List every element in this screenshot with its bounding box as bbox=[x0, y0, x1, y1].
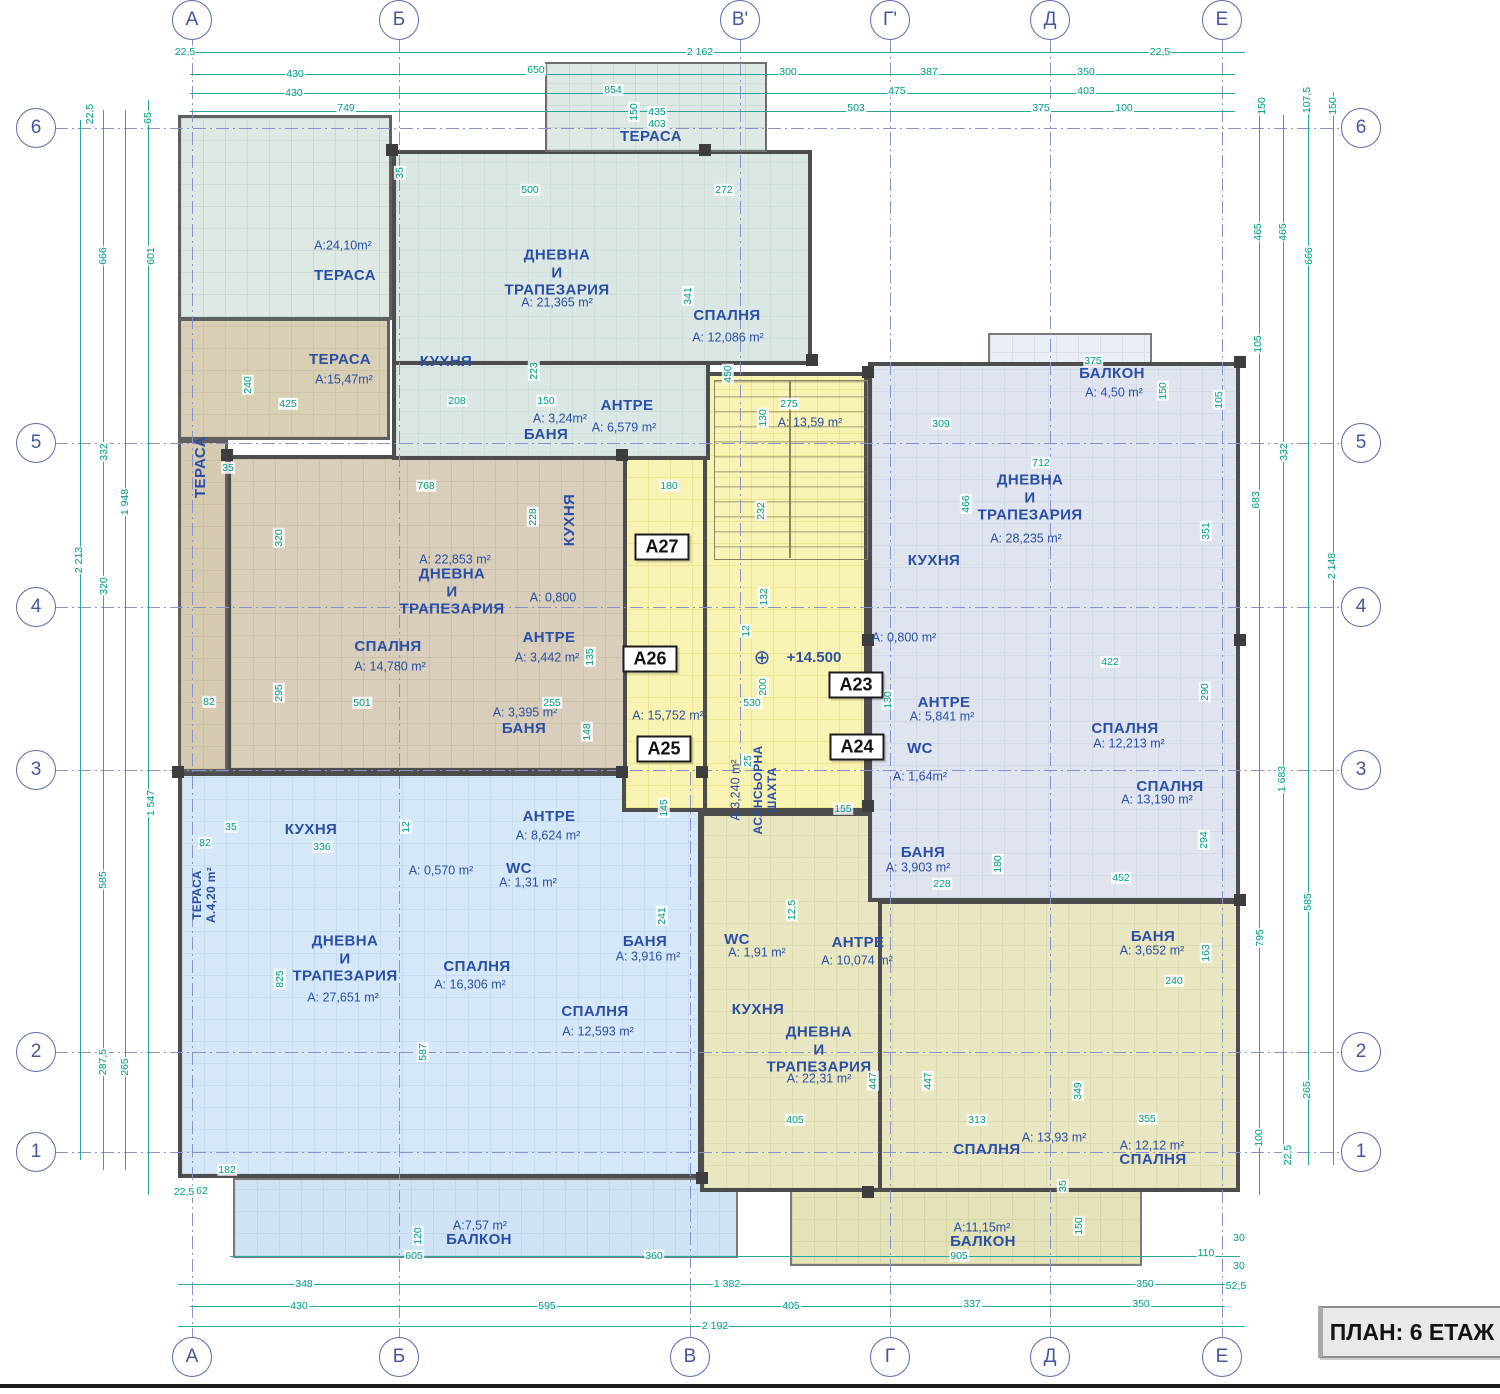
structural-column bbox=[221, 449, 233, 461]
dimension-label: 300 bbox=[778, 66, 798, 78]
staircase-divider bbox=[789, 380, 791, 558]
dimension-label: 387 bbox=[919, 66, 939, 78]
grid-bubble: 1 bbox=[1341, 1132, 1381, 1172]
dimension-label: 150 bbox=[1256, 96, 1268, 116]
grid-bubble: 6 bbox=[1341, 108, 1381, 148]
dimension-label: 30 bbox=[1232, 1260, 1246, 1272]
dimension-line bbox=[1308, 92, 1309, 1165]
dimension-line bbox=[103, 110, 104, 1170]
dimension-label: 465 bbox=[1252, 222, 1264, 242]
dimension-label: 22,5 bbox=[84, 103, 96, 125]
terrace-top-left bbox=[178, 115, 392, 320]
dimension-line bbox=[1283, 115, 1284, 1165]
grid-bubble: Г' bbox=[870, 0, 910, 40]
grid-bubble: 1 bbox=[16, 1132, 56, 1172]
grid-bubble: А bbox=[172, 0, 212, 40]
apartment-a27-main bbox=[392, 150, 812, 365]
grid-bubble: 2 bbox=[16, 1032, 56, 1072]
dimension-line bbox=[190, 93, 1235, 94]
grid-bubble: 6 bbox=[16, 108, 56, 148]
grid-bubble: Е bbox=[1202, 0, 1242, 40]
dimension-line bbox=[148, 100, 149, 1195]
grid-bubble: В' bbox=[720, 0, 760, 40]
dimension-label: 375 bbox=[1031, 102, 1051, 114]
apartment-tag-a27: A27 bbox=[634, 534, 689, 561]
dimension-line bbox=[190, 74, 1235, 75]
dimension-label: 795 bbox=[1254, 928, 1266, 948]
grid-axis-line bbox=[192, 40, 193, 1340]
dimension-label: 332 bbox=[1278, 442, 1290, 462]
dimension-label: 749 bbox=[336, 102, 356, 114]
structural-column bbox=[616, 449, 628, 461]
grid-axis-line bbox=[1222, 40, 1223, 1340]
grid-bubble: Д bbox=[1030, 1337, 1070, 1377]
grid-axis-line bbox=[55, 128, 1345, 129]
dimension-label: 2 148 bbox=[1326, 552, 1338, 580]
dimension-label: 100 bbox=[1114, 102, 1134, 114]
dimension-label: 350 bbox=[1131, 1298, 1151, 1310]
structural-column bbox=[1234, 894, 1246, 906]
dimension-label: 30 bbox=[1232, 1232, 1246, 1244]
dimension-line bbox=[1333, 92, 1334, 1165]
structural-column bbox=[862, 634, 874, 646]
grid-axis-line bbox=[690, 772, 691, 1340]
structural-column bbox=[806, 354, 818, 366]
grid-axis-line bbox=[399, 40, 400, 1340]
structural-column bbox=[862, 800, 874, 812]
grid-bubble: 3 bbox=[16, 750, 56, 790]
grid-axis-line bbox=[1050, 40, 1051, 1340]
staircase bbox=[714, 380, 868, 560]
structural-column bbox=[1234, 356, 1246, 368]
structural-column bbox=[172, 766, 184, 778]
sheet-border-line bbox=[0, 1384, 1500, 1388]
dimension-label: 105 bbox=[1252, 334, 1264, 354]
terrace-top-strip bbox=[545, 62, 767, 152]
grid-axis-line bbox=[55, 443, 1345, 444]
dimension-label: 2 213 bbox=[73, 546, 85, 574]
grid-bubble: Д bbox=[1030, 0, 1070, 40]
grid-bubble: Б bbox=[379, 1337, 419, 1377]
apartment-tag-a26: A26 bbox=[622, 646, 677, 673]
apartment-a25 bbox=[178, 772, 702, 1178]
grid-bubble: Б bbox=[379, 0, 419, 40]
structural-column bbox=[862, 1186, 874, 1198]
dimension-label: 1 547 bbox=[145, 789, 157, 817]
dimension-label: 332 bbox=[98, 442, 110, 462]
grid-axis-line bbox=[740, 40, 741, 772]
apartment-a24-east bbox=[866, 900, 1240, 1192]
plan-title: ПЛАН: 6 ЕТАЖ bbox=[1318, 1306, 1500, 1358]
grid-bubble: 5 bbox=[16, 423, 56, 463]
grid-bubble: 4 bbox=[1341, 587, 1381, 627]
apartment-a24-west bbox=[700, 812, 882, 1192]
apartment-a26 bbox=[227, 455, 627, 772]
balcony-a25 bbox=[233, 1178, 738, 1258]
structural-column bbox=[616, 766, 628, 778]
dimension-label: 265 bbox=[1301, 1080, 1313, 1100]
dimension-label: 110 bbox=[1197, 1247, 1216, 1259]
dimension-label: 62 bbox=[195, 1185, 209, 1197]
dimension-line bbox=[190, 111, 1235, 112]
dimension-label: 337 bbox=[962, 1298, 982, 1310]
terrace-left-strip bbox=[178, 440, 228, 772]
structural-column bbox=[386, 144, 398, 156]
balcony-a24 bbox=[790, 1190, 1142, 1266]
floor-plan-sheet: ПЛАН: 6 ЕТАЖ А:24,10m²ТЕРАСАТЕРАСАА:15,4… bbox=[0, 0, 1500, 1394]
grid-bubble: Г bbox=[870, 1337, 910, 1377]
dimension-line bbox=[178, 52, 1245, 53]
apartment-tag-a24: A24 bbox=[829, 734, 884, 761]
grid-axis-line bbox=[890, 40, 891, 1340]
dimension-line bbox=[230, 1256, 1240, 1257]
grid-bubble: 2 bbox=[1341, 1032, 1381, 1072]
dimension-line bbox=[80, 120, 81, 1160]
grid-bubble: Е bbox=[1202, 1337, 1242, 1377]
apartment-tag-a25: A25 bbox=[636, 736, 691, 763]
dimension-line bbox=[178, 1284, 1245, 1285]
grid-bubble: 5 bbox=[1341, 423, 1381, 463]
structural-column bbox=[699, 144, 711, 156]
structural-column bbox=[696, 1172, 708, 1184]
grid-bubble: 4 bbox=[16, 587, 56, 627]
dimension-line bbox=[190, 1306, 1225, 1307]
terrace-khaki bbox=[178, 318, 390, 440]
dimension-label: 683 bbox=[1250, 490, 1262, 510]
grid-axis-line bbox=[55, 607, 1345, 608]
grid-bubble: 3 bbox=[1341, 750, 1381, 790]
dimension-label: 666 bbox=[1303, 246, 1315, 266]
grid-axis-line bbox=[55, 1052, 1345, 1053]
structural-column bbox=[1234, 634, 1246, 646]
structural-column bbox=[696, 766, 708, 778]
dimension-line bbox=[125, 110, 126, 1170]
dimension-line bbox=[178, 1326, 1245, 1327]
dimension-label: 503 bbox=[846, 102, 866, 114]
apartment-tag-a23: A23 bbox=[828, 672, 883, 699]
structural-column bbox=[862, 366, 874, 378]
grid-bubble: А bbox=[172, 1337, 212, 1377]
dimension-label: 403 bbox=[1076, 85, 1096, 97]
dimension-label: 107,5 bbox=[1301, 86, 1313, 114]
grid-axis-line bbox=[55, 1152, 1345, 1153]
dimension-label: 350 bbox=[1076, 66, 1096, 78]
dimension-label: 320 bbox=[98, 576, 110, 596]
dimension-label: 52,5 bbox=[1225, 1280, 1247, 1292]
dimension-label: 601 bbox=[145, 246, 157, 266]
dimension-line bbox=[1259, 100, 1260, 1195]
grid-bubble: В bbox=[670, 1337, 710, 1377]
